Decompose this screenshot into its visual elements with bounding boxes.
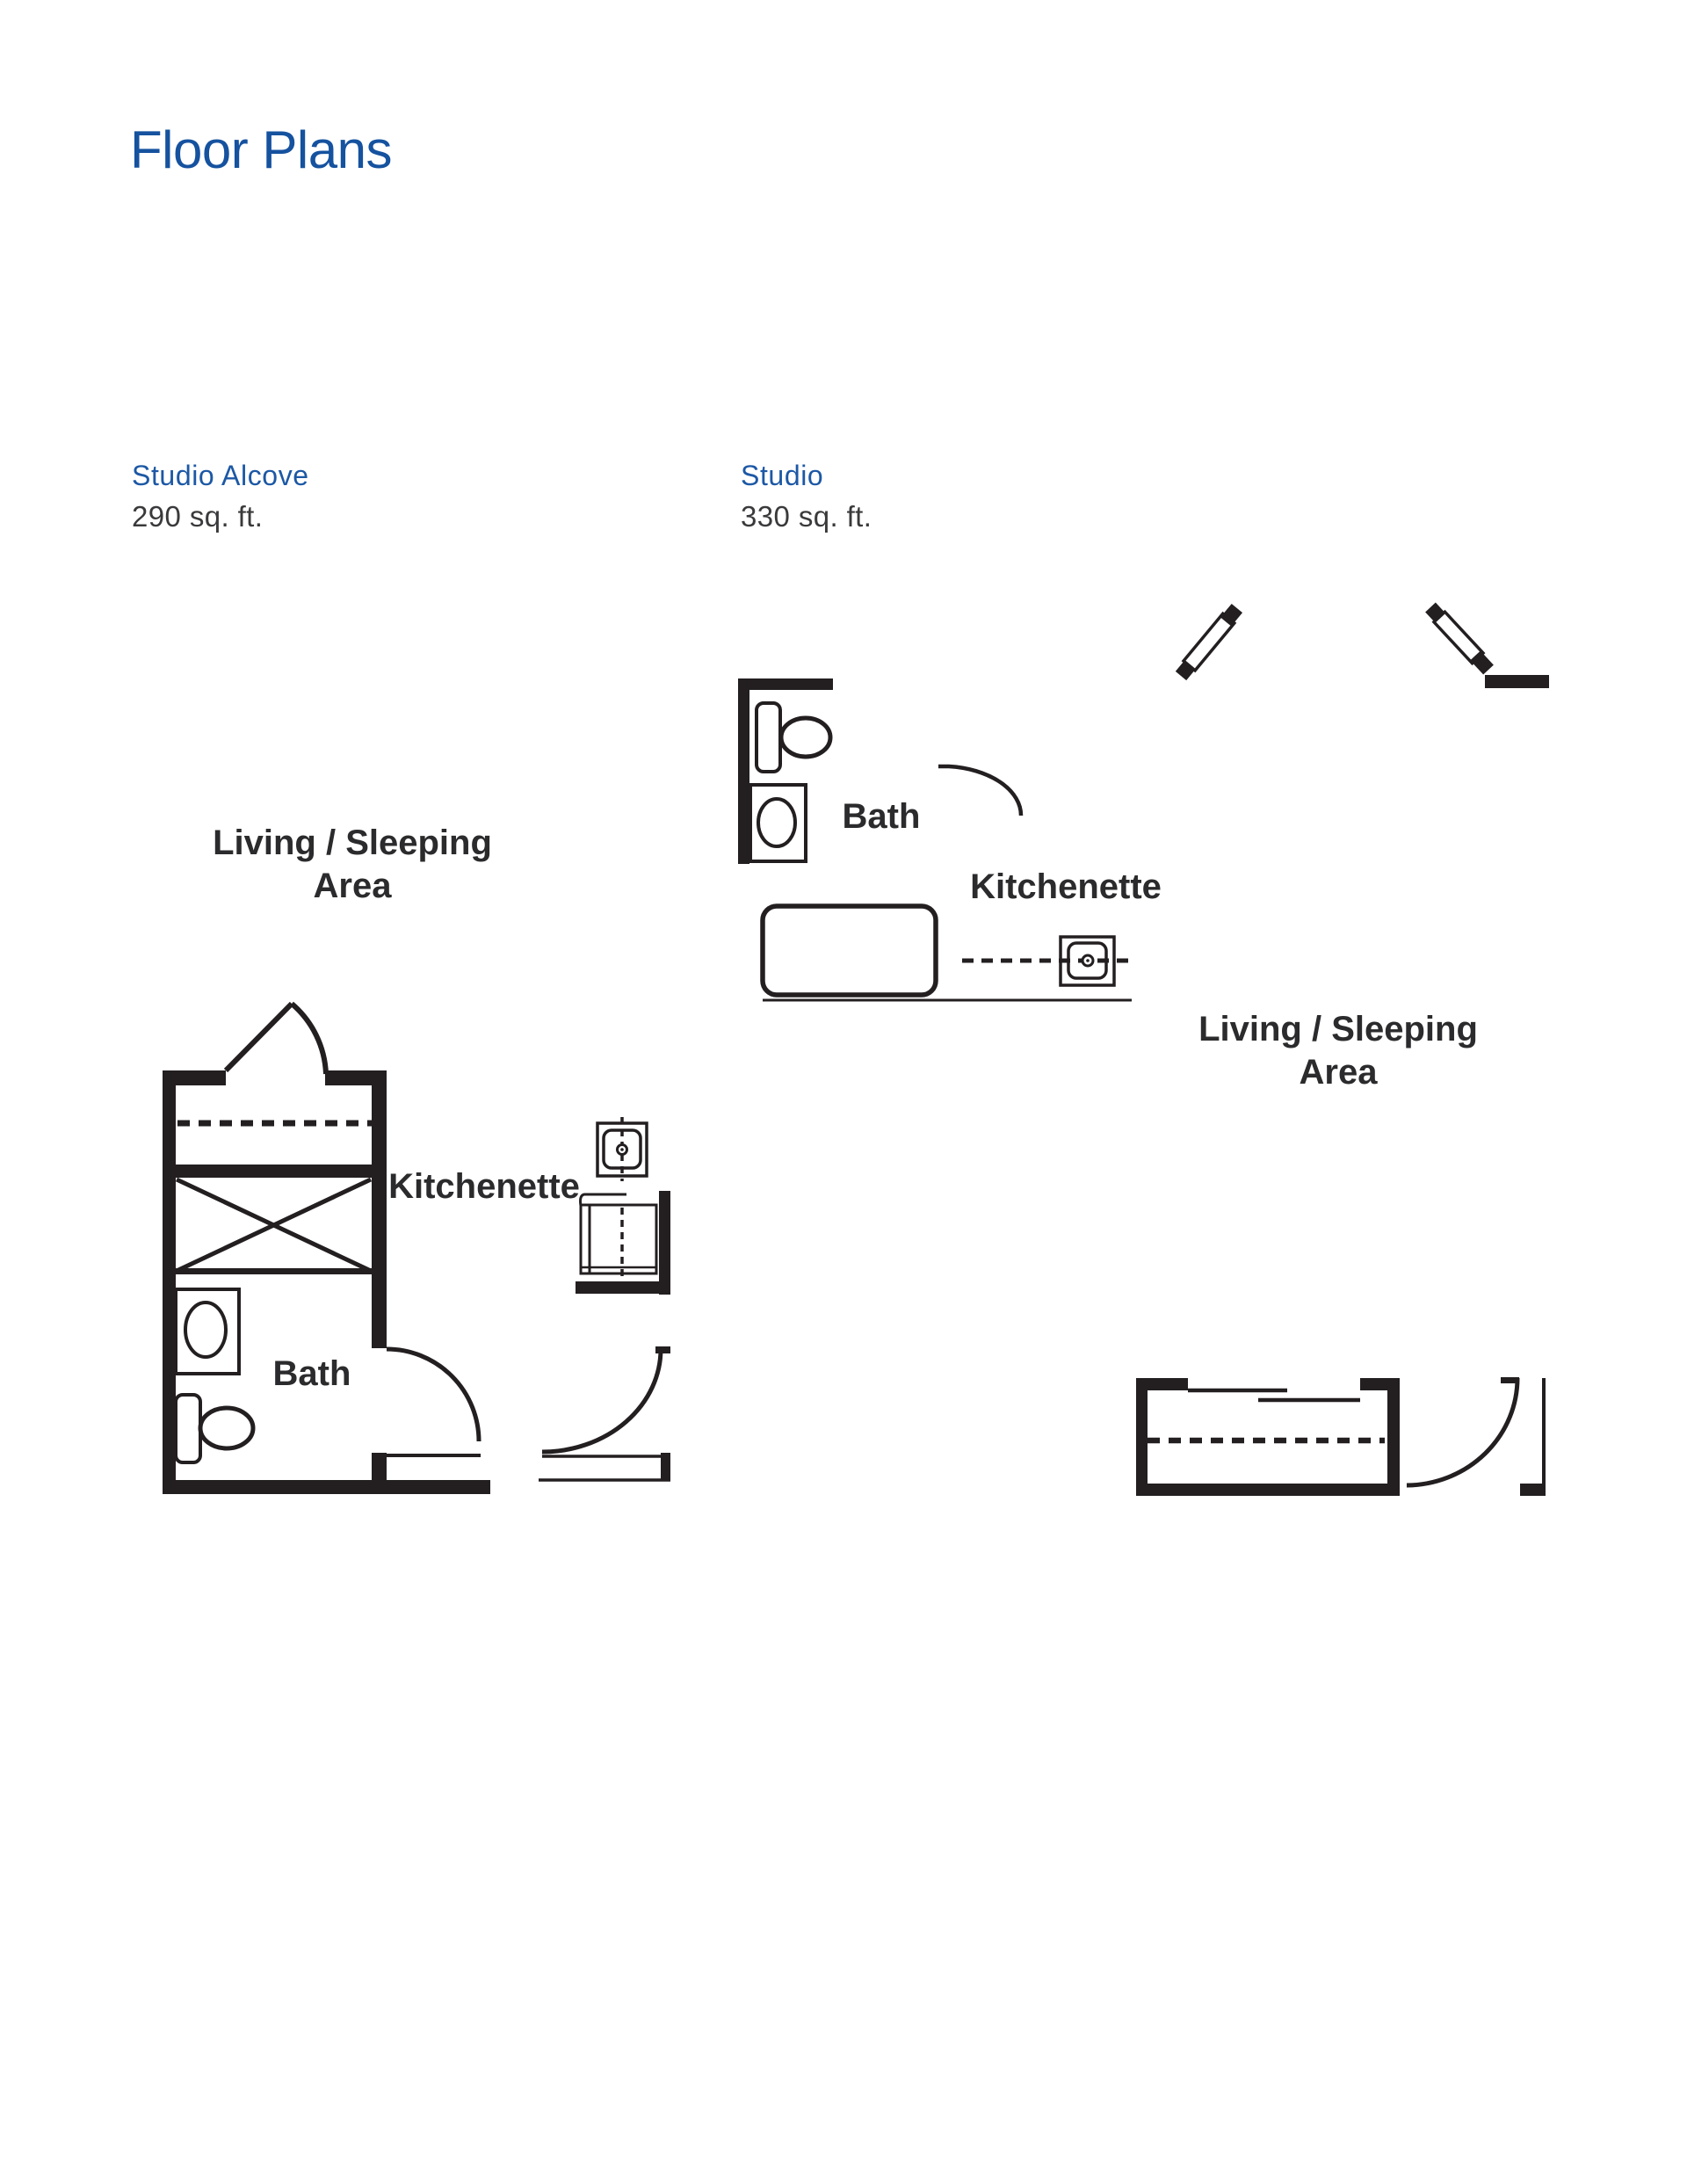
window-bay-right-icon [1425, 602, 1549, 688]
closet [1136, 1378, 1400, 1496]
bath-sink-icon [176, 1289, 239, 1374]
studio-floorplan: Bath Kitchenette Living / Sleeping Area [738, 602, 1549, 1496]
window-bay-left-icon [1175, 604, 1242, 681]
closet-shelf [176, 1123, 372, 1178]
entry-door-swing-icon [1407, 1377, 1546, 1496]
bath-sink-icon [750, 785, 806, 861]
bath-door-swing-icon [372, 1349, 481, 1455]
cooktop-icon [962, 937, 1132, 985]
toilet-icon [757, 703, 830, 772]
kitchenette-counter-icon [576, 1191, 670, 1295]
label-kitchenette: Kitchenette [970, 867, 1162, 906]
label-bath: Bath [273, 1354, 351, 1393]
closet-x-box [176, 1179, 372, 1274]
label-living-sleeping-line1: Living / Sleeping [1198, 1010, 1478, 1048]
cooktop-icon [597, 1117, 647, 1181]
label-kitchenette: Kitchenette [388, 1167, 580, 1206]
page: Floor Plans Studio Alcove 290 sq. ft. St… [0, 0, 1687, 2184]
toilet-icon [176, 1395, 253, 1462]
floor-plan-drawing: Living / Sleeping Area Kitchenette Bath [0, 0, 1687, 2184]
label-living-sleeping-line2: Area [1300, 1053, 1379, 1092]
studio-alcove-floorplan: Living / Sleeping Area Kitchenette Bath [163, 824, 670, 1494]
bath-door-swing-icon [938, 766, 1021, 816]
label-living-sleeping-line1: Living / Sleeping [213, 824, 492, 862]
label-living-sleeping-line2: Area [314, 867, 393, 905]
label-bath: Bath [843, 797, 921, 836]
entry-door-swing-icon [539, 1346, 670, 1480]
alcove-door-swing-icon [226, 1004, 326, 1074]
